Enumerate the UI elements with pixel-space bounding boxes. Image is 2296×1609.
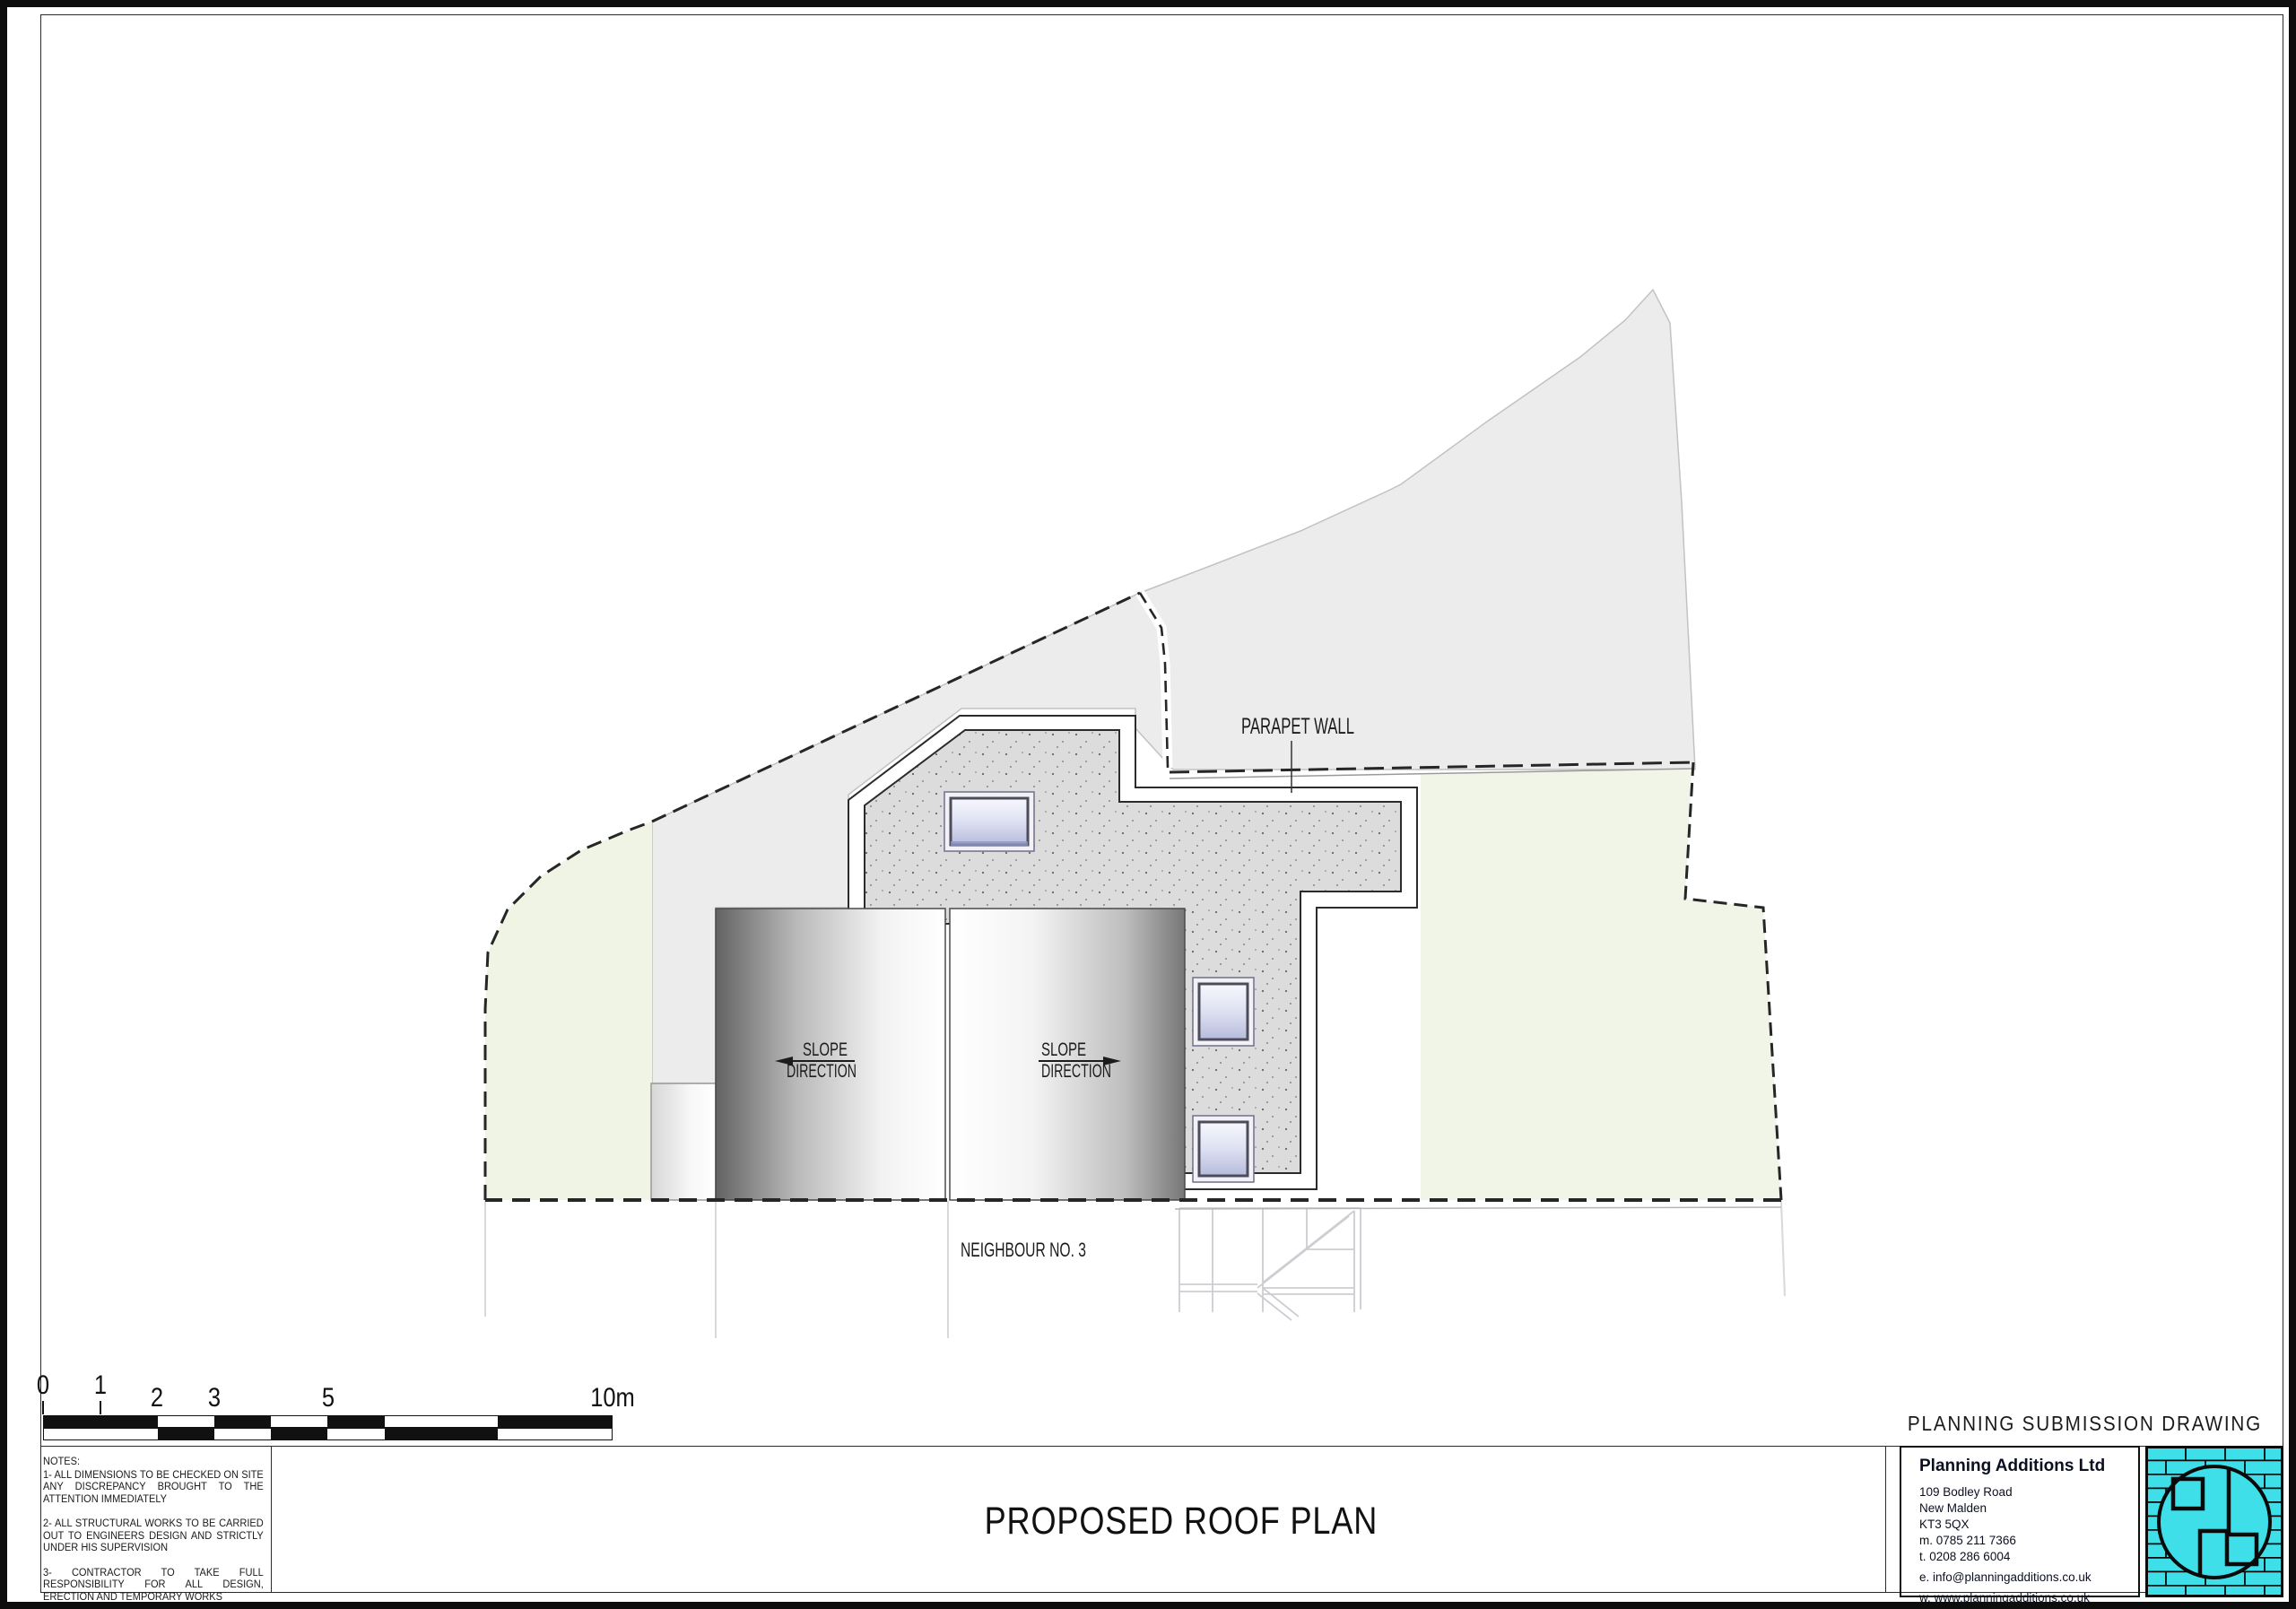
company-info-line: m. 0785 211 7366	[1919, 1533, 2131, 1549]
scale-bar-segment	[271, 1429, 327, 1439]
submission-stamp: PLANNING SUBMISSION DRAWING	[1908, 1412, 2262, 1436]
scale-bar-segment	[498, 1429, 612, 1439]
scale-bar-tick	[100, 1401, 101, 1414]
note-item: 2- ALL STRUCTURAL WORKS TO BE CARRIED OU…	[43, 1518, 264, 1555]
notes-block: NOTES: 1- ALL DIMENSIONS TO BE CHECKED O…	[43, 1457, 264, 1609]
scale-bar-label: 1	[77, 1370, 123, 1401]
scale-bar-segment	[385, 1429, 499, 1439]
scale-bar-label: 10m	[590, 1383, 636, 1413]
company-info-line: t. 0208 286 6004	[1919, 1549, 2131, 1565]
scale-bar-segment	[44, 1416, 158, 1427]
scale-bar-segment	[271, 1416, 327, 1427]
drawing-title: PROPOSED ROOF PLAN	[985, 1500, 1339, 1544]
scale-bar-label: 2	[135, 1383, 180, 1413]
scale-bar-segment	[327, 1416, 384, 1427]
scale-bar-tick	[42, 1401, 44, 1414]
notes-heading: NOTES:	[43, 1457, 264, 1469]
scale-bar-row	[43, 1415, 613, 1428]
scale-bar-segment	[214, 1429, 271, 1439]
scale-bar-segment	[44, 1429, 158, 1439]
scale-bar-label: 5	[305, 1383, 351, 1413]
company-info-box: Planning Additions Ltd 109 Bodley RoadNe…	[1900, 1446, 2140, 1597]
logo-circle	[2159, 1466, 2270, 1578]
scale-bar-segment	[158, 1416, 214, 1427]
logo-graphic	[2145, 1446, 2283, 1597]
company-info-line: w. www.planningadditions.co.uk	[1919, 1590, 2131, 1606]
company-divider	[1885, 1446, 1886, 1593]
scale-bar-label: 3	[191, 1383, 237, 1413]
scale-bar-segment	[385, 1416, 499, 1427]
scale-bar-row	[43, 1428, 613, 1440]
company-info-line: New Malden	[1919, 1500, 2131, 1517]
company-name: Planning Additions Ltd	[1919, 1457, 2131, 1476]
note-item: 1- ALL DIMENSIONS TO BE CHECKED ON SITE …	[43, 1470, 264, 1507]
note-item: 3- CONTRACTOR TO TAKE FULL RESPONSIBILIT…	[43, 1568, 264, 1605]
company-info-line: KT3 5QX	[1919, 1517, 2131, 1533]
scale-bar-segment	[498, 1416, 612, 1427]
notes-divider	[271, 1446, 272, 1593]
company-info-line: e. info@planningadditions.co.uk	[1919, 1570, 2131, 1586]
company-logo	[2145, 1446, 2283, 1602]
scale-bar-segment	[327, 1429, 384, 1439]
sheet-outer-frame	[0, 0, 2296, 1609]
scale-bar-segment	[214, 1416, 271, 1427]
scale-bar-segment	[158, 1429, 214, 1439]
company-info-line: 109 Bodley Road	[1919, 1484, 2131, 1500]
drawing-sheet: PARAPET WALL SLOPE DIRECTION SLOPE DIREC…	[0, 0, 2296, 1609]
scale-bar-label: 0	[21, 1370, 66, 1401]
